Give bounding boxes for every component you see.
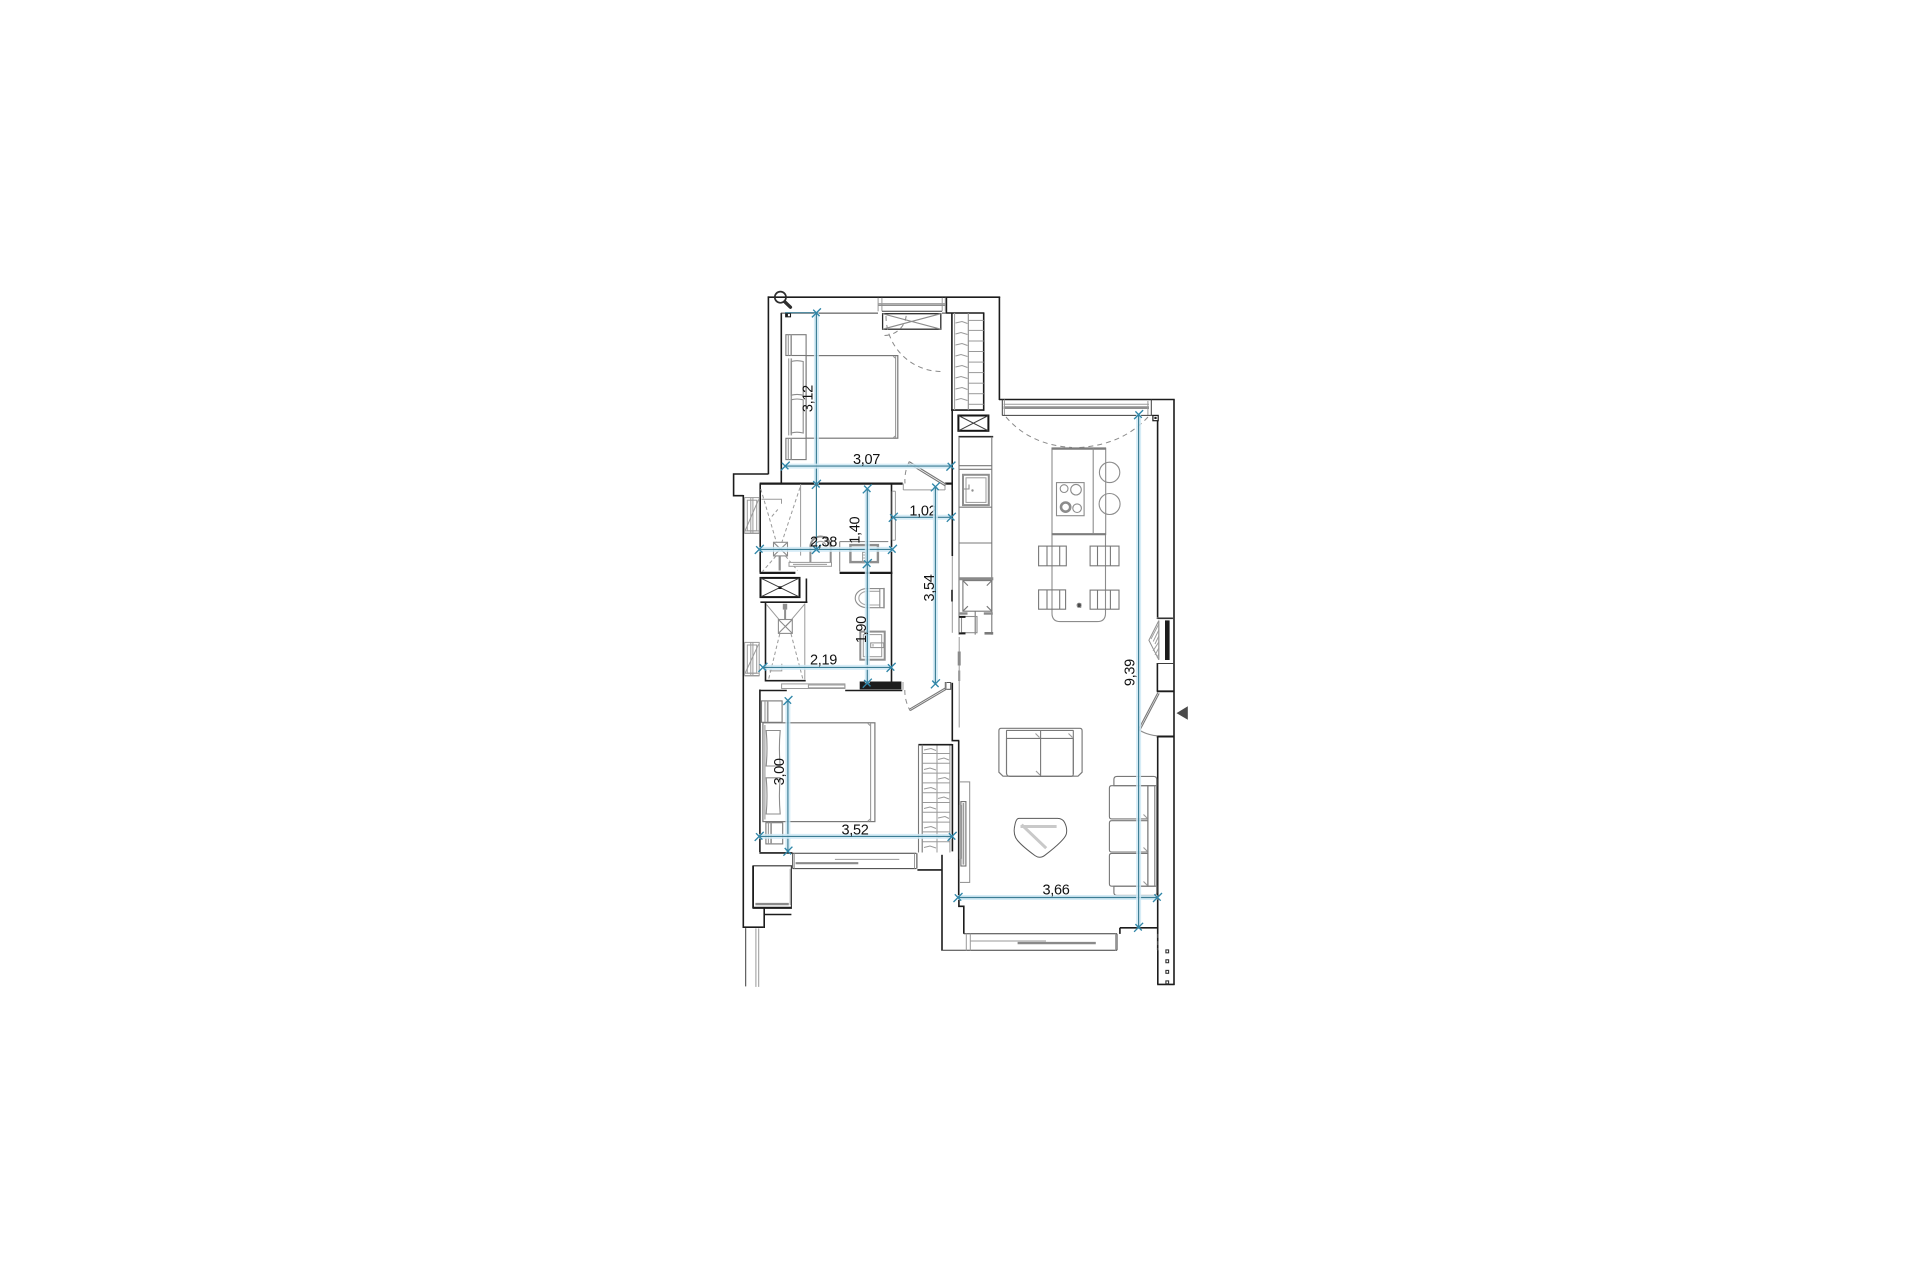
svg-text:3,07: 3,07 bbox=[853, 452, 880, 468]
svg-text:2,19: 2,19 bbox=[810, 652, 837, 668]
svg-text:1,40: 1,40 bbox=[847, 516, 863, 543]
svg-text:3,66: 3,66 bbox=[1042, 882, 1069, 898]
svg-text:3,52: 3,52 bbox=[841, 823, 868, 839]
svg-text:3,00: 3,00 bbox=[772, 758, 788, 785]
svg-text:1,90: 1,90 bbox=[854, 616, 870, 643]
svg-text:1,02: 1,02 bbox=[909, 504, 936, 520]
svg-text:9,39: 9,39 bbox=[1122, 659, 1138, 686]
svg-text:3,54: 3,54 bbox=[922, 574, 938, 601]
svg-text:3,12: 3,12 bbox=[801, 385, 817, 412]
svg-text:2,38: 2,38 bbox=[810, 534, 837, 550]
